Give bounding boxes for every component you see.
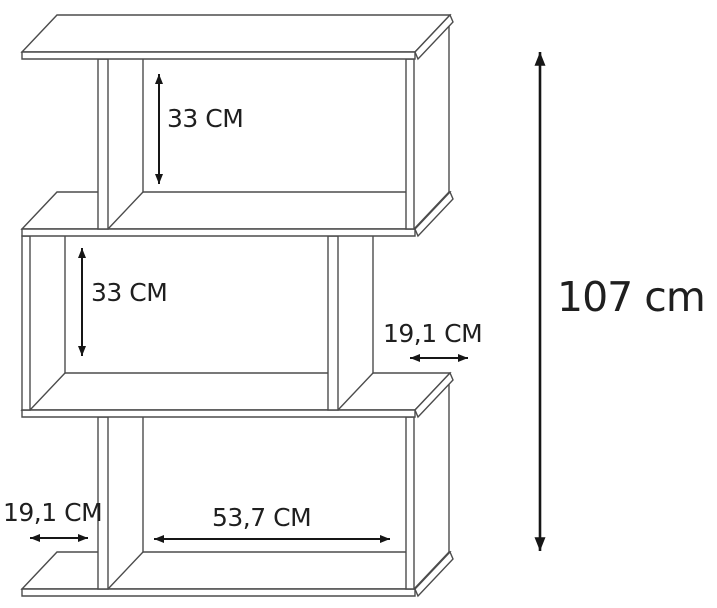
label-top-compartment-height: 33 CM — [167, 105, 243, 133]
label-total-height: 107 cm — [557, 275, 705, 320]
label-side-depth-bottom-left: 19,1 CM — [3, 499, 102, 527]
upper-shelf-board — [22, 192, 453, 236]
top-board — [22, 15, 453, 59]
bottom-board — [22, 552, 453, 596]
lower-shelf-board — [22, 373, 453, 417]
label-bottom-compartment-width: 53,7 CM — [212, 504, 311, 532]
label-middle-compartment-height: 33 CM — [91, 279, 167, 307]
furniture-dimension-diagram: 33 CM 33 CM 19,1 CM 19,1 CM 53,7 CM 107 … — [0, 0, 717, 608]
label-side-depth-right: 19,1 CM — [383, 320, 482, 348]
